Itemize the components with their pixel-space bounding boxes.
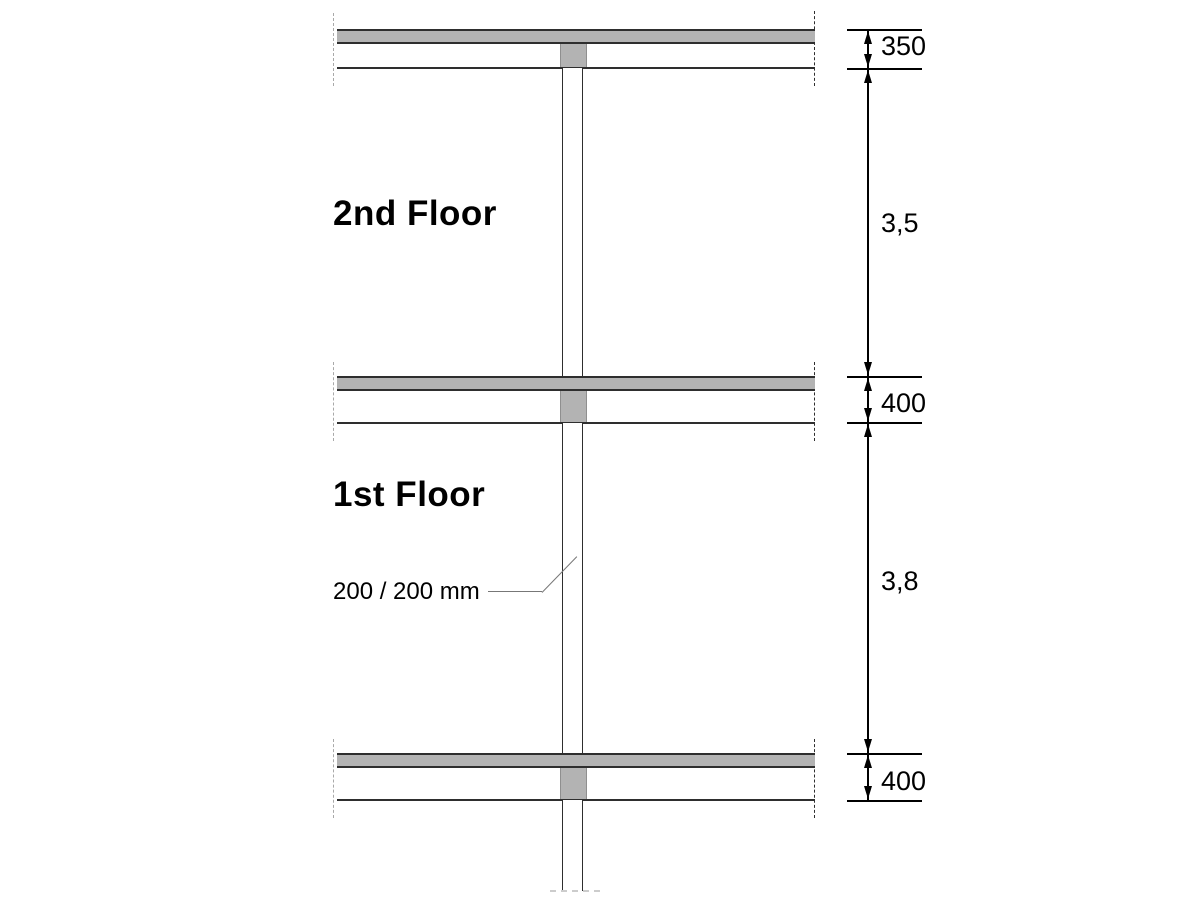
column-size-label: 200 / 200 mm (333, 580, 480, 604)
leader-line-horizontal (488, 591, 542, 592)
dim-arrow-up-floor1 (864, 755, 872, 768)
structural-section-drawing: 2nd Floor 1st Floor 200 / 200 mm 350 3,5… (0, 0, 1200, 903)
dim-arrow-up-roof-top (864, 31, 872, 44)
dim-tick-roof-soffit (847, 68, 922, 70)
floor2-slab-cut-dashed-left (333, 362, 334, 441)
column-segment-below-floor1 (562, 800, 583, 891)
column-break-dashed-line (550, 890, 600, 892)
floor1-column-head-stub (560, 768, 587, 800)
floor1-slab-cut-dashed-left (333, 739, 334, 818)
floor2-slab-band (337, 376, 815, 391)
dim-label-floor2-slab-depth: 400 (881, 390, 926, 417)
dim-arrow-down-floor2 (864, 408, 872, 421)
floor1-slab-band (337, 753, 815, 768)
dim-label-storey2-height: 3,5 (881, 210, 919, 237)
column-segment-storey-2 (562, 68, 583, 377)
dim-tick-floor2-soffit (847, 422, 922, 424)
dim-label-floor1-slab-depth: 400 (881, 768, 926, 795)
column-segment-storey-1 (562, 423, 583, 754)
dim-arrow-down-roof-soffit (864, 54, 872, 67)
roof-slab-cut-dashed-left (333, 13, 334, 86)
roof-column-head-stub (560, 44, 587, 68)
dim-label-roof-slab-depth: 350 (881, 33, 926, 60)
dim-tick-floor2-top (847, 376, 922, 378)
dim-arrow-down-storey2 (864, 362, 872, 375)
dim-tick-floor1-top (847, 753, 922, 755)
dim-arrow-up-storey1 (864, 424, 872, 437)
dim-arrow-down-storey1 (864, 739, 872, 752)
roof-slab-band (337, 29, 815, 44)
dim-label-storey1-height: 3,8 (881, 568, 919, 595)
roof-slab-cut-dashed-right (814, 11, 815, 86)
floor1-slab-cut-dashed-right (814, 739, 815, 818)
floor2-column-head-stub (560, 391, 587, 423)
dim-arrow-up-storey2 (864, 70, 872, 83)
dim-tick-floor1-soffit (847, 800, 922, 802)
dim-arrow-down-floor1 (864, 786, 872, 799)
floor-label-1st: 1st Floor (333, 477, 485, 512)
floor2-slab-cut-dashed-right (814, 362, 815, 441)
floor-label-2nd: 2nd Floor (333, 196, 497, 231)
dim-arrow-up-floor2 (864, 378, 872, 391)
